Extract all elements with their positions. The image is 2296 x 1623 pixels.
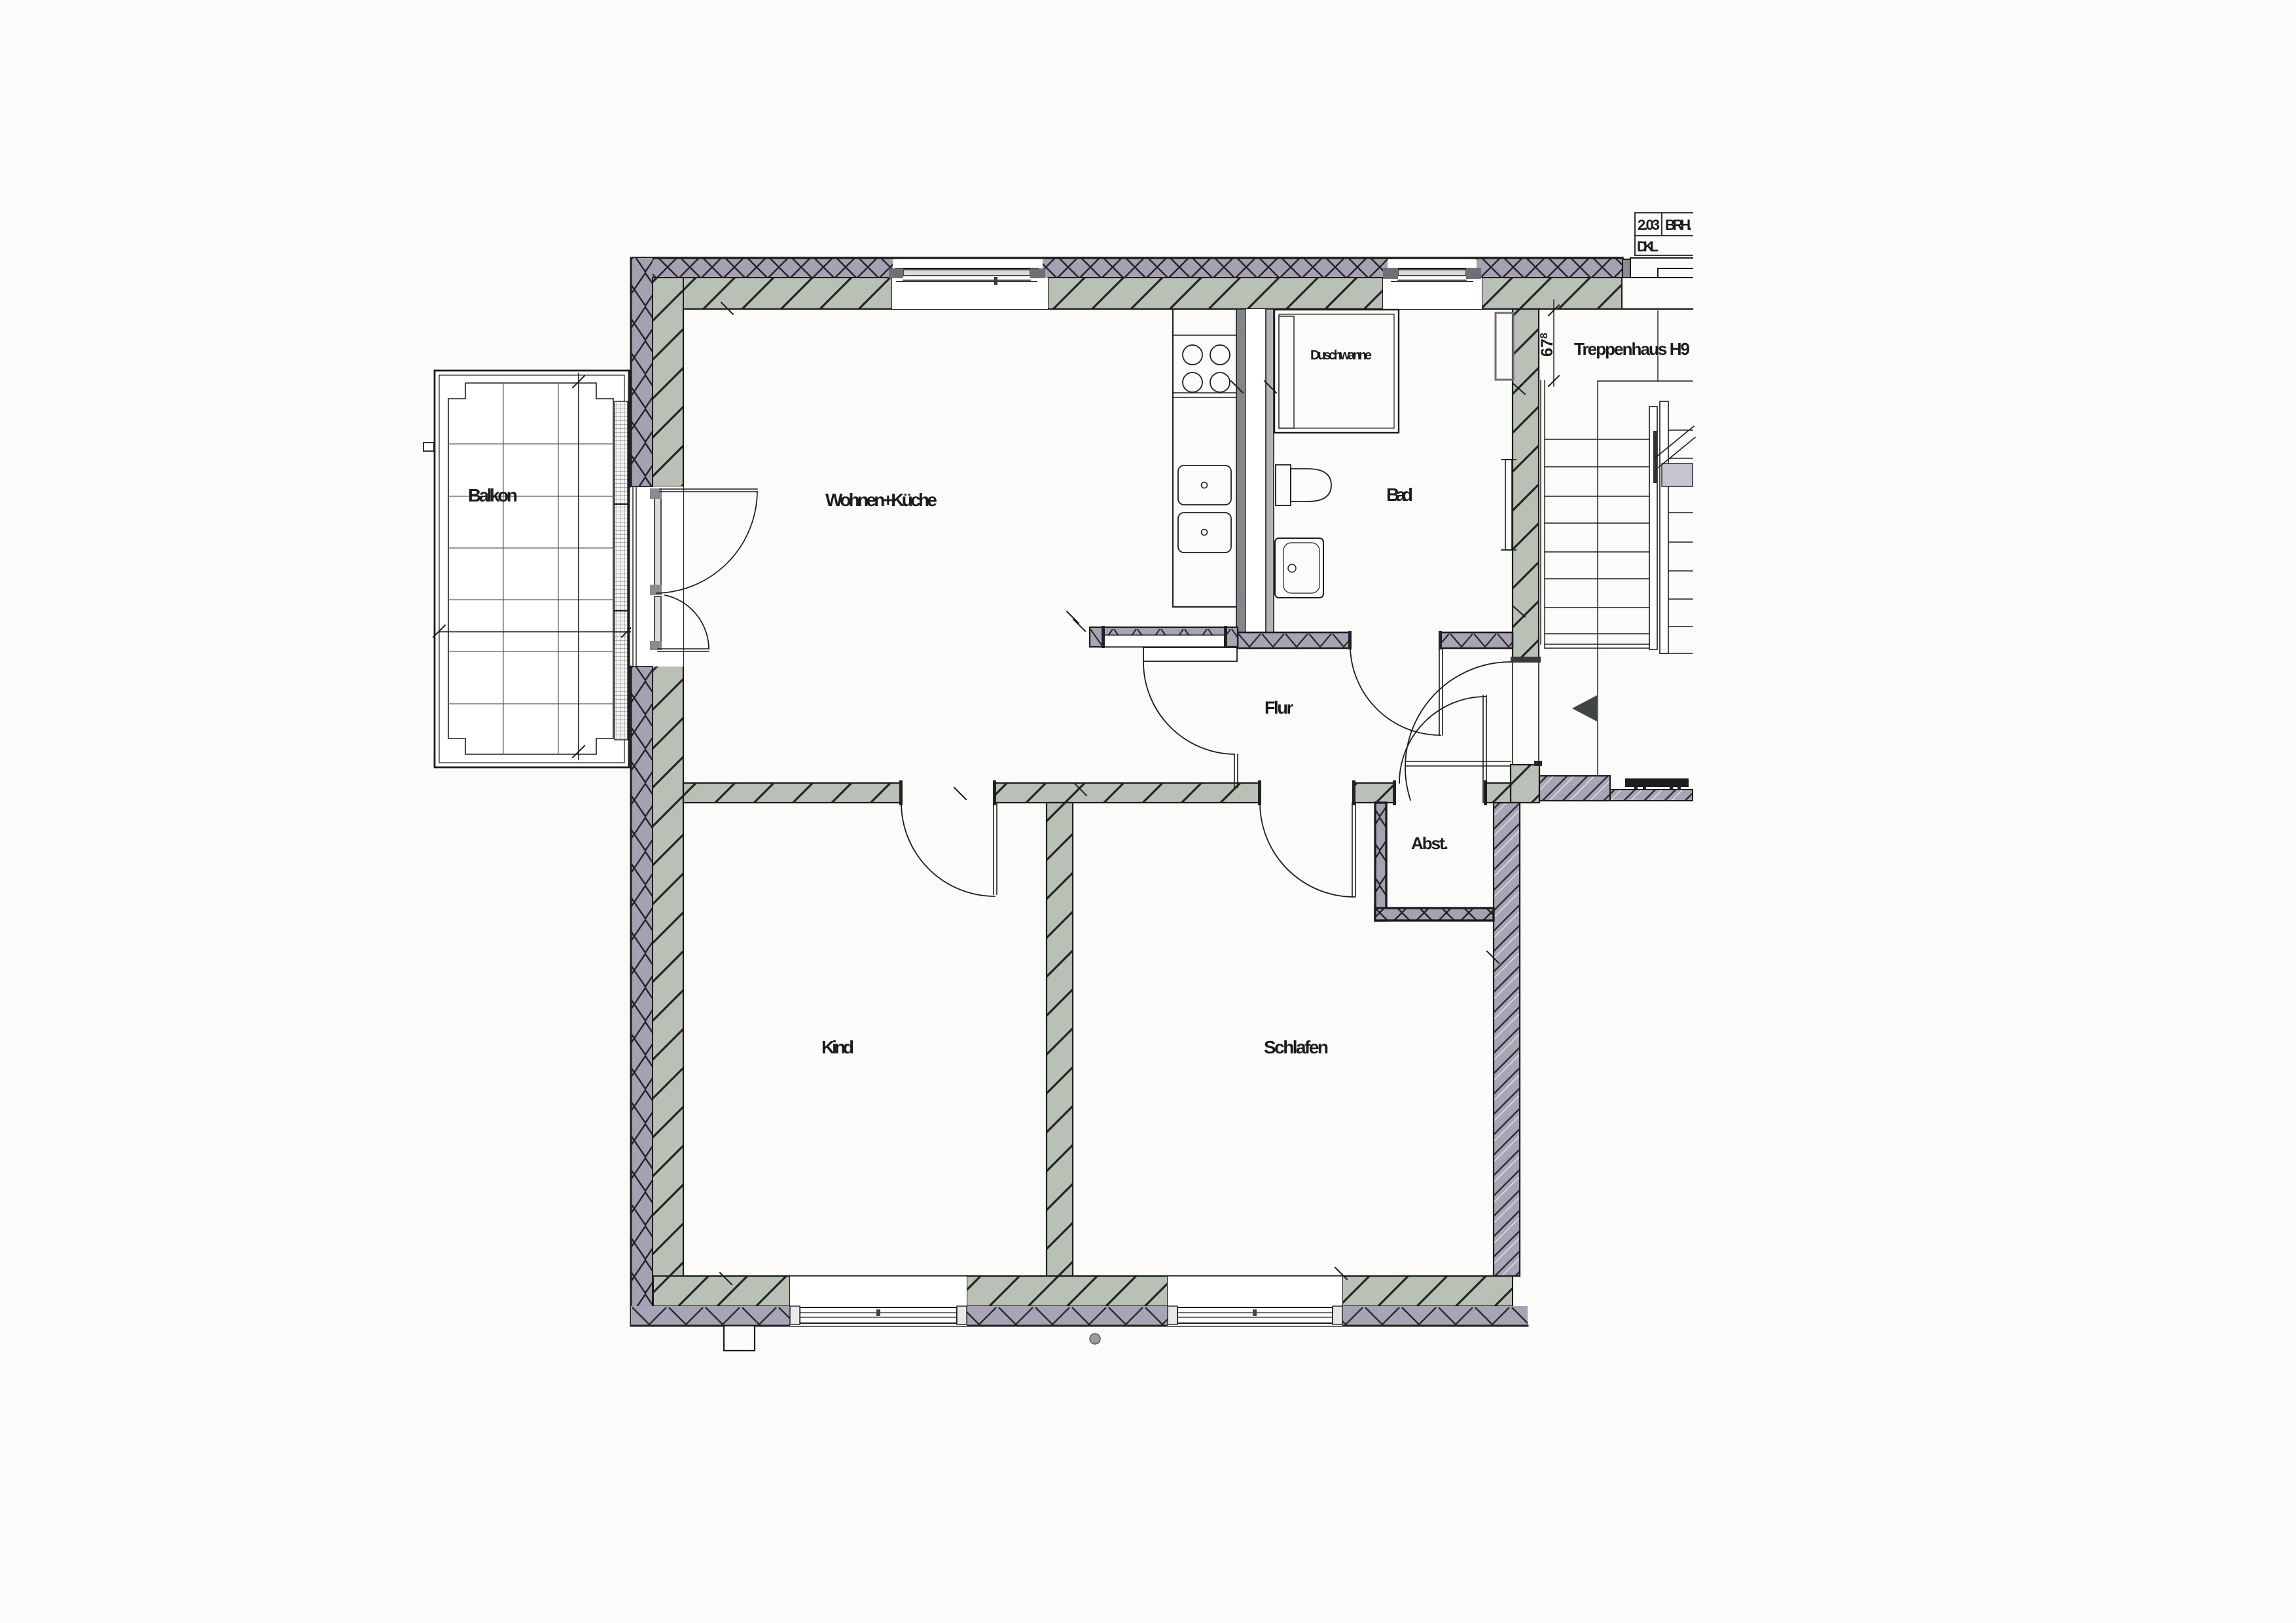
svg-text:Kind: Kind bbox=[821, 1037, 854, 1057]
svg-text:BRH.: BRH. bbox=[1665, 217, 1692, 233]
svg-text:Duschwanne: Duschwanne bbox=[1310, 348, 1372, 363]
svg-text:Treppenhaus H9: Treppenhaus H9 bbox=[1574, 339, 1690, 359]
svg-text:Abst.: Abst. bbox=[1411, 833, 1448, 853]
svg-text:Schlafen: Schlafen bbox=[1264, 1037, 1329, 1057]
svg-text:Bad: Bad bbox=[1386, 484, 1413, 505]
svg-text:Flur: Flur bbox=[1265, 698, 1293, 718]
svg-text:Wohnen+Küche: Wohnen+Küche bbox=[825, 490, 937, 510]
svg-text:Balkon: Balkon bbox=[468, 485, 518, 505]
svg-text:2.03: 2.03 bbox=[1638, 217, 1660, 233]
svg-text:DKL: DKL bbox=[1637, 238, 1659, 255]
